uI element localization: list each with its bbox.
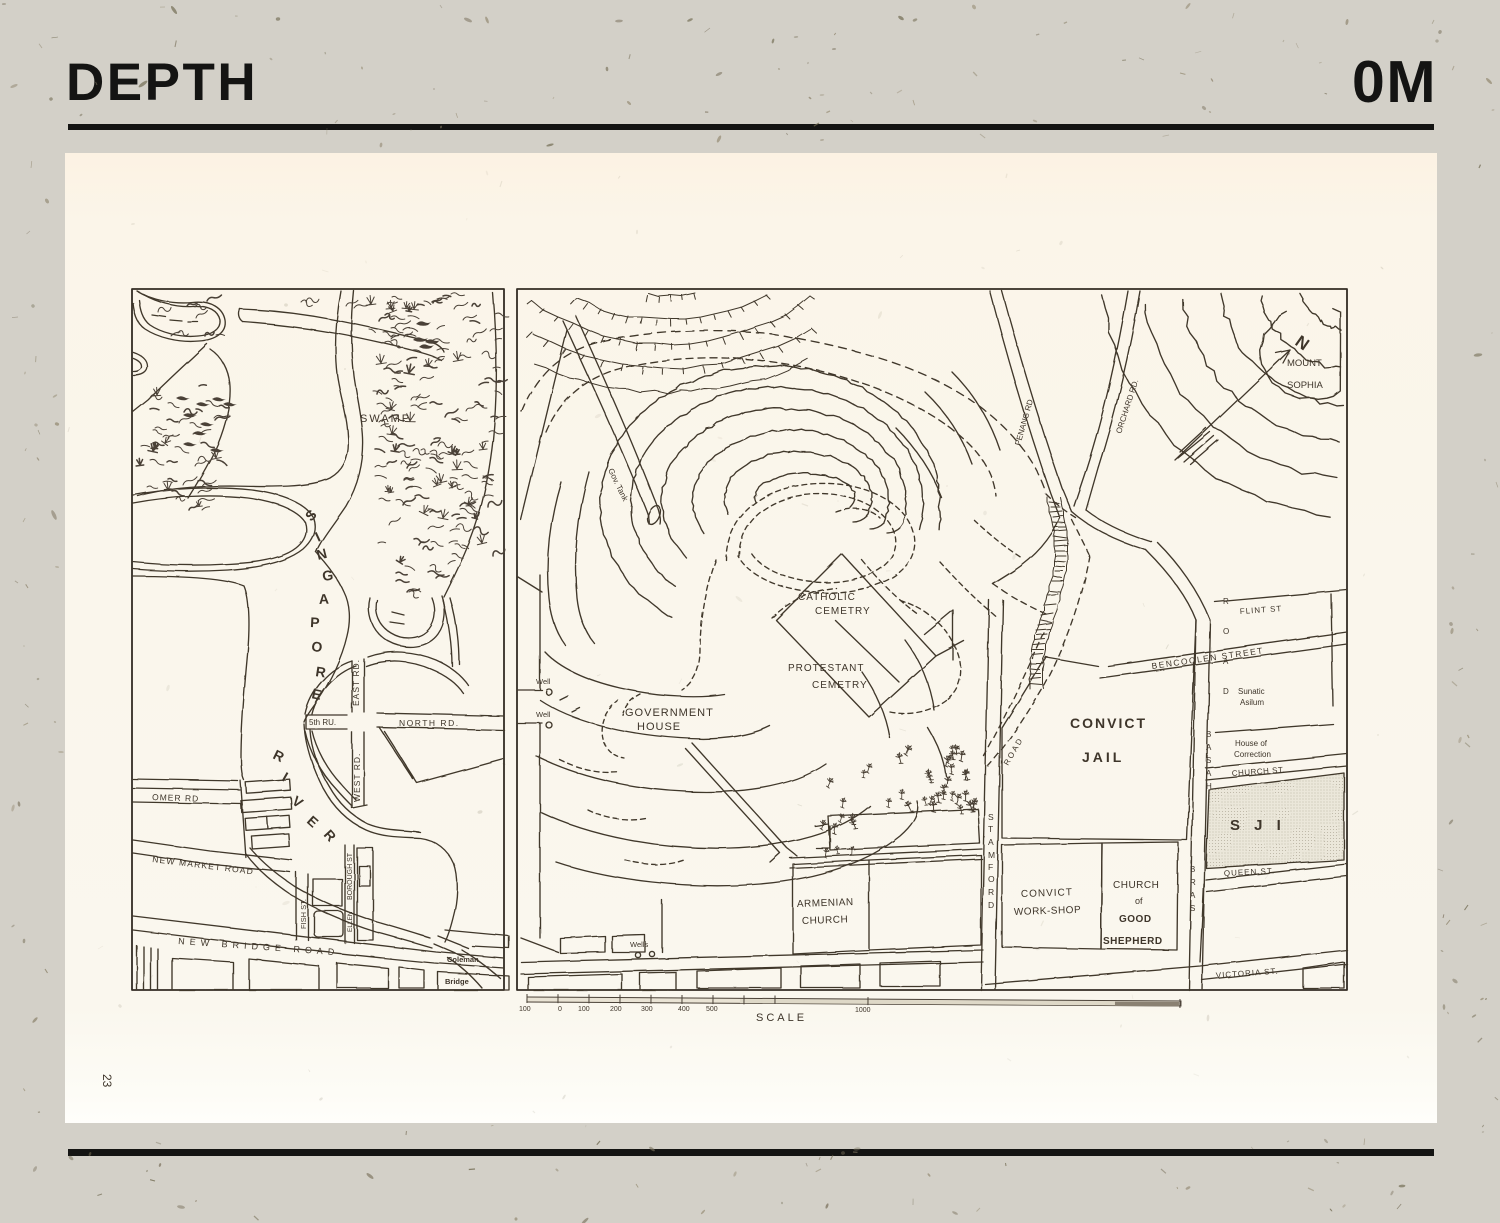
svg-text:R: R	[321, 826, 340, 844]
svg-text:D: D	[1223, 687, 1229, 696]
svg-text:JAIL: JAIL	[1082, 749, 1124, 765]
svg-text:VICTORIA ST.: VICTORIA ST.	[1216, 967, 1279, 980]
svg-text:O: O	[988, 874, 995, 884]
svg-text:A: A	[1206, 743, 1212, 752]
svg-text:B: B	[1190, 865, 1195, 874]
svg-text:R: R	[988, 887, 994, 897]
svg-text:D: D	[988, 900, 994, 910]
svg-text:100: 100	[519, 1006, 531, 1013]
svg-text:300: 300	[641, 1006, 653, 1013]
svg-text:100: 100	[578, 1006, 590, 1013]
svg-text:O: O	[1223, 627, 1229, 636]
svg-text:B: B	[1206, 730, 1211, 739]
svg-text:SCALE: SCALE	[756, 1012, 807, 1024]
svg-text:A: A	[1190, 891, 1196, 900]
svg-text:E: E	[310, 685, 322, 703]
svg-text:BOROUGH ST: BOROUGH ST	[347, 852, 354, 900]
svg-text:HOUSE: HOUSE	[637, 721, 681, 733]
svg-text:NEW BRIDGE ROAD: NEW BRIDGE ROAD	[178, 936, 340, 957]
svg-text:of: of	[1135, 896, 1143, 906]
svg-text:I: I	[313, 529, 323, 545]
svg-text:A: A	[1223, 657, 1229, 666]
svg-text:R: R	[1190, 878, 1196, 887]
svg-text:Gov. Tank: Gov. Tank	[606, 467, 630, 504]
svg-text:5th RU.: 5th RU.	[309, 718, 336, 727]
svg-text:Well: Well	[536, 710, 551, 719]
svg-text:M: M	[988, 850, 995, 860]
svg-text:PROTESTANT: PROTESTANT	[788, 663, 864, 674]
svg-text:P: P	[310, 614, 320, 630]
svg-text:R: R	[271, 746, 287, 765]
svg-text:500: 500	[706, 1006, 718, 1013]
svg-text:CONVICT: CONVICT	[1070, 715, 1147, 731]
svg-text:CEMETRY: CEMETRY	[812, 680, 868, 691]
svg-text:G: G	[321, 567, 334, 584]
svg-text:CEMETRY: CEMETRY	[815, 606, 871, 617]
svg-text:23: 23	[100, 1074, 114, 1088]
svg-text:N: N	[315, 545, 329, 563]
svg-text:S: S	[988, 812, 994, 822]
svg-text:WEST RD.: WEST RD.	[352, 753, 362, 802]
svg-text:SHEPHERD: SHEPHERD	[1103, 936, 1163, 947]
svg-text:N: N	[1292, 332, 1313, 355]
svg-text:MOUNT: MOUNT	[1287, 358, 1322, 369]
svg-text:R: R	[1223, 597, 1229, 606]
svg-text:CATHOLIC: CATHOLIC	[798, 592, 856, 603]
svg-text:SOPHIA: SOPHIA	[1287, 380, 1324, 391]
svg-text:H: H	[1206, 782, 1212, 791]
svg-text:S J I: S J I	[1230, 817, 1286, 834]
svg-text:A: A	[988, 837, 994, 847]
svg-text:Coleman: Coleman	[447, 955, 479, 964]
svg-text:OMER RD: OMER RD	[152, 792, 199, 804]
svg-text:F: F	[988, 862, 993, 872]
svg-text:S: S	[1206, 756, 1211, 765]
svg-text:CHURCH: CHURCH	[802, 914, 849, 927]
svg-text:House of: House of	[1235, 739, 1268, 748]
svg-text:Asilum: Asilum	[1240, 698, 1264, 707]
svg-text:A: A	[1206, 769, 1212, 778]
svg-text:Bridge: Bridge	[445, 977, 469, 986]
svg-text:O: O	[311, 638, 324, 655]
svg-text:Well: Well	[536, 677, 551, 686]
svg-text:A: A	[319, 591, 330, 607]
svg-text:ELLEN: ELLEN	[347, 911, 354, 932]
svg-text:ROAD: ROAD	[1002, 736, 1025, 767]
svg-text:CHURCH: CHURCH	[1113, 880, 1159, 891]
svg-text:EAST RD.: EAST RD.	[351, 659, 361, 706]
svg-text:400: 400	[678, 1006, 690, 1013]
svg-text:CHURCH ST.: CHURCH ST.	[1232, 765, 1286, 778]
svg-text:CONVICT: CONVICT	[1021, 887, 1073, 900]
svg-text:Correction: Correction	[1234, 750, 1271, 759]
svg-text:FISH ST.: FISH ST.	[299, 899, 308, 929]
svg-text:WORK-SHOP: WORK-SHOP	[1014, 905, 1082, 918]
svg-text:SWAMP: SWAMP	[360, 413, 411, 425]
svg-text:Sunatic: Sunatic	[1238, 687, 1265, 696]
svg-text:200: 200	[610, 1006, 622, 1013]
svg-text:0: 0	[558, 1006, 562, 1013]
svg-text:GOVERNMENT: GOVERNMENT	[625, 707, 714, 719]
svg-text:T: T	[988, 824, 993, 834]
svg-text:S: S	[1190, 904, 1195, 913]
svg-text:NEW MARKET ROAD: NEW MARKET ROAD	[152, 854, 255, 876]
svg-text:ARMENIAN: ARMENIAN	[797, 897, 854, 910]
svg-text:NORTH RD.: NORTH RD.	[399, 718, 460, 728]
svg-text:E: E	[304, 812, 322, 830]
svg-text:1000: 1000	[855, 1007, 871, 1014]
svg-text:GOOD: GOOD	[1119, 914, 1152, 925]
svg-text:Wells: Wells	[630, 940, 648, 949]
svg-text:FLINT ST: FLINT ST	[1240, 604, 1283, 616]
svg-text:ORCHARD RD.: ORCHARD RD.	[1114, 378, 1140, 434]
